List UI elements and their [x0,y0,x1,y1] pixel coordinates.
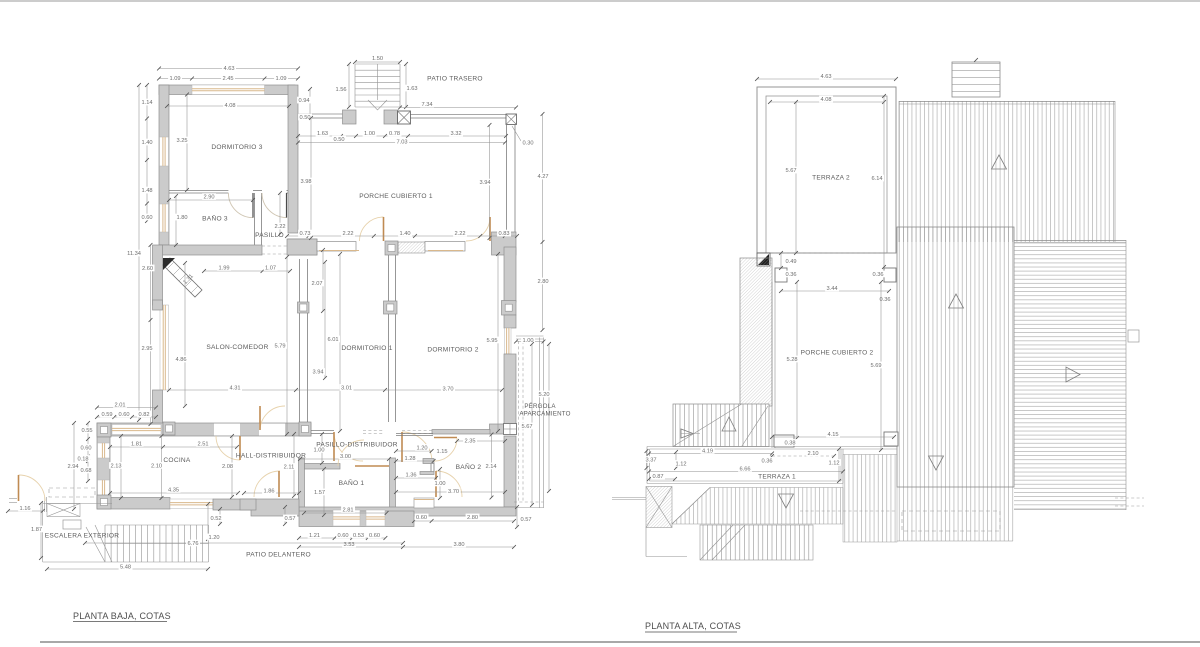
svg-text:TERRAZA 2: TERRAZA 2 [812,174,850,181]
svg-text:DORMITORIO 3: DORMITORIO 3 [211,144,262,151]
svg-text:1.57: 1.57 [314,490,325,496]
svg-text:2.51: 2.51 [197,442,208,448]
svg-text:1.63: 1.63 [317,131,328,137]
svg-text:6.76: 6.76 [187,541,198,547]
svg-text:1.50: 1.50 [372,56,383,62]
svg-text:4.19: 4.19 [702,449,713,455]
svg-text:0.68: 0.68 [80,468,91,474]
svg-text:0.82: 0.82 [138,412,149,418]
svg-text:0.30: 0.30 [522,141,533,147]
svg-text:0.94: 0.94 [298,98,309,104]
svg-text:2.90: 2.90 [203,195,214,201]
svg-text:1.87: 1.87 [31,527,42,533]
svg-text:0.49: 0.49 [785,259,796,265]
svg-text:1.00: 1.00 [313,448,324,454]
svg-text:PATIO DELANTERO: PATIO DELANTERO [246,551,311,558]
svg-text:0.60: 0.60 [337,533,348,539]
svg-text:0.18: 0.18 [77,457,88,463]
svg-text:4.15: 4.15 [827,432,838,438]
svg-text:PASILLO: PASILLO [255,232,284,239]
svg-text:1.15: 1.15 [436,449,447,455]
svg-text:3.25: 3.25 [176,138,187,144]
svg-text:3.32: 3.32 [450,131,461,137]
svg-text:2.95: 2.95 [141,346,152,352]
svg-text:11.34: 11.34 [127,251,141,257]
svg-text:1.12: 1.12 [675,462,686,468]
svg-text:5.48: 5.48 [120,565,131,571]
svg-text:BAÑO 3: BAÑO 3 [202,213,228,222]
svg-text:COCINA: COCINA [163,457,190,464]
svg-text:7.03: 7.03 [396,140,407,146]
svg-text:4.35: 4.35 [168,488,179,494]
svg-text:2.08: 2.08 [222,464,233,470]
svg-text:0.60: 0.60 [416,515,427,521]
svg-text:DORMITORIO 2: DORMITORIO 2 [427,346,478,353]
svg-text:0.50: 0.50 [299,115,310,121]
svg-text:1.12: 1.12 [828,461,839,467]
svg-text:2.94: 2.94 [67,464,78,470]
svg-text:DORMITORIO 1: DORMITORIO 1 [341,345,392,352]
svg-text:7.34: 7.34 [421,102,432,108]
svg-text:3.94: 3.94 [479,180,490,186]
svg-text:0.87: 0.87 [652,474,663,480]
svg-text:4.08: 4.08 [224,103,235,109]
svg-text:PASILLO-DISTRIBUIDOR: PASILLO-DISTRIBUIDOR [316,441,397,448]
svg-text:5.79: 5.79 [274,344,285,350]
svg-text:2.35: 2.35 [464,439,475,445]
svg-text:1.63: 1.63 [406,86,417,92]
svg-text:0.60: 0.60 [80,446,91,452]
svg-text:PÉRGOLA: PÉRGOLA [524,403,556,410]
svg-text:2.07: 2.07 [311,281,322,287]
svg-text:1.81: 1.81 [131,442,142,448]
svg-text:0.60: 0.60 [369,533,380,539]
svg-text:0.83: 0.83 [498,231,509,237]
svg-text:3.70: 3.70 [442,387,453,393]
svg-text:1.20: 1.20 [208,535,219,541]
svg-text:1.00: 1.00 [364,131,375,137]
svg-text:3.44: 3.44 [826,286,837,292]
svg-text:1.86: 1.86 [263,489,274,495]
svg-text:1.40: 1.40 [141,140,152,146]
svg-text:1.21: 1.21 [309,533,320,539]
svg-text:4.63: 4.63 [820,74,831,80]
svg-text:0.60: 0.60 [141,215,152,221]
svg-text:4.08: 4.08 [820,97,831,103]
svg-text:5.95: 5.95 [486,338,497,344]
svg-text:1.99: 1.99 [218,266,229,272]
svg-text:2.01: 2.01 [114,403,125,409]
svg-text:1.36: 1.36 [405,473,416,479]
svg-text:6.14: 6.14 [871,176,882,182]
svg-text:SALON-COMEDOR: SALON-COMEDOR [206,344,268,351]
svg-text:0.38: 0.38 [784,441,795,447]
svg-text:BAÑO 1: BAÑO 1 [339,478,365,487]
svg-text:0.57: 0.57 [284,516,295,522]
svg-text:1.00: 1.00 [522,338,533,344]
svg-text:2.60: 2.60 [142,266,153,272]
svg-text:HALL-DISTRIBUIDOR: HALL-DISTRIBUIDOR [236,452,306,459]
svg-text:0.59: 0.59 [101,412,112,418]
svg-text:2.22: 2.22 [454,231,465,237]
svg-text:2.14: 2.14 [485,464,496,470]
svg-text:5.67: 5.67 [785,168,796,174]
svg-text:6.66: 6.66 [739,467,750,473]
svg-text:2.45: 2.45 [222,76,233,82]
svg-text:2.11: 2.11 [284,465,295,471]
svg-text:1.09: 1.09 [169,76,180,82]
svg-text:1.07: 1.07 [265,266,276,272]
svg-text:3.98: 3.98 [300,179,311,185]
svg-text:5.28: 5.28 [786,357,797,363]
svg-text:1.00: 1.00 [434,481,445,487]
svg-text:PORCHE CUBIERTO 1: PORCHE CUBIERTO 1 [359,193,433,200]
svg-text:4.31: 4.31 [229,386,240,392]
svg-text:3.37: 3.37 [645,458,656,464]
svg-text:0.36: 0.36 [872,272,883,278]
svg-text:0.55: 0.55 [81,428,92,434]
svg-text:3.94: 3.94 [312,370,323,376]
svg-text:0.36: 0.36 [785,272,796,278]
svg-text:2.80: 2.80 [537,279,548,285]
svg-text:1.20: 1.20 [416,446,427,452]
svg-text:0.60: 0.60 [118,412,129,418]
svg-text:3.70: 3.70 [448,489,459,495]
svg-text:2.10: 2.10 [807,451,818,457]
svg-text:2.22: 2.22 [274,224,285,230]
svg-text:0.73: 0.73 [299,231,310,237]
svg-text:5.67: 5.67 [521,424,532,430]
svg-text:PLANTA ALTA, COTAS: PLANTA ALTA, COTAS [645,621,741,631]
svg-text:2.10: 2.10 [151,464,162,470]
svg-text:1.16: 1.16 [19,506,30,512]
svg-text:2.22: 2.22 [342,231,353,237]
svg-text:TERRAZA 1: TERRAZA 1 [758,473,796,480]
svg-text:5.20: 5.20 [538,392,549,398]
svg-text:1.56: 1.56 [335,87,346,93]
svg-text:4.63: 4.63 [223,66,234,72]
svg-text:0.57: 0.57 [520,517,531,523]
svg-text:PLANTA BAJA, COTAS: PLANTA BAJA, COTAS [73,611,171,621]
svg-text:PATIO TRASERO: PATIO TRASERO [427,75,483,82]
svg-text:1.09: 1.09 [275,76,286,82]
svg-text:0.53: 0.53 [353,533,364,539]
svg-text:3.80: 3.80 [453,542,464,548]
svg-text:1.28: 1.28 [404,456,415,462]
svg-text:1.40: 1.40 [399,231,410,237]
svg-text:3.01: 3.01 [341,386,352,392]
svg-text:0.36: 0.36 [761,459,772,465]
svg-text:APARCAMIENTO: APARCAMIENTO [519,411,570,418]
svg-text:1.48: 1.48 [141,188,152,194]
svg-text:ESCALERA EXTERIOR: ESCALERA EXTERIOR [45,532,120,539]
svg-text:4.27: 4.27 [537,174,548,180]
svg-text:PORCHE CUBIERTO 2: PORCHE CUBIERTO 2 [801,349,874,356]
svg-text:2.13: 2.13 [110,464,121,470]
svg-text:5.69: 5.69 [870,363,881,369]
svg-text:BAÑO 2: BAÑO 2 [456,462,482,471]
svg-text:0.52: 0.52 [210,516,221,522]
svg-text:0.78: 0.78 [389,131,400,137]
svg-text:6.01: 6.01 [327,337,338,343]
svg-text:3.00: 3.00 [340,454,351,460]
svg-text:2.81: 2.81 [342,508,353,514]
svg-text:2.80: 2.80 [467,515,478,521]
svg-text:1.80: 1.80 [176,215,187,221]
svg-text:0.50: 0.50 [333,137,344,143]
svg-text:4.86: 4.86 [175,357,186,363]
svg-text:1.14: 1.14 [141,100,152,106]
